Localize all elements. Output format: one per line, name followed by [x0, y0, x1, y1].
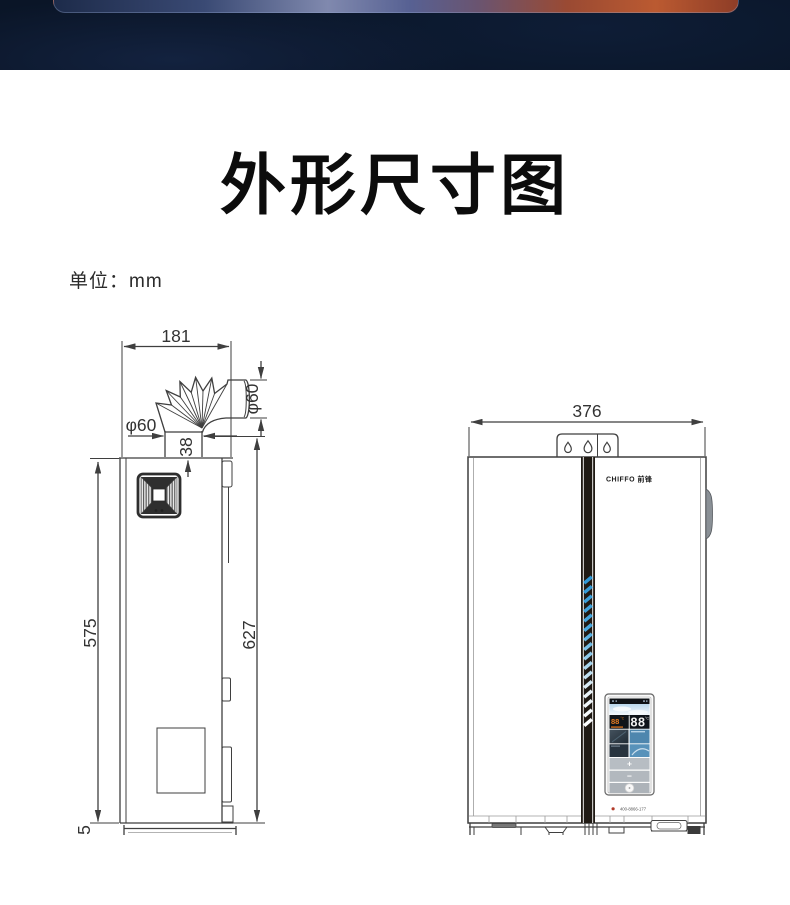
- top-banner: [0, 0, 790, 70]
- section-title: 外形尺寸图: [0, 152, 790, 218]
- dim-total-height-label: 627: [239, 620, 259, 649]
- dim-phi60-vertical: φ60: [242, 361, 267, 437]
- hotline-label: 400-8866-177: [620, 807, 647, 812]
- temp-right-unit: °C: [645, 717, 649, 721]
- side-bracket-profile: [222, 461, 232, 487]
- gas-valve: [651, 821, 687, 832]
- side-foot-profile: [222, 806, 233, 822]
- dimension-section: 外形尺寸图 单位：mm: [0, 70, 790, 835]
- side-panel-profile: [222, 747, 232, 802]
- dim-collar-label: 38: [176, 437, 196, 456]
- side-view-drawing: 181: [74, 326, 267, 835]
- plus-button-label: +: [627, 759, 632, 769]
- mount-bracket: [557, 434, 618, 457]
- pipe-funnel: [545, 827, 567, 833]
- dim-base-label: 5: [74, 825, 94, 835]
- dimension-drawing-canvas: 181: [0, 300, 790, 905]
- brand-logo: CHIFFO 前锋: [606, 475, 653, 484]
- dim-body-height-label: 575: [80, 618, 100, 647]
- minus-button-label: −: [627, 771, 632, 781]
- control-panel: 88 °C 88 °C: [605, 694, 654, 795]
- exhaust-duct-assembly: [156, 377, 249, 457]
- keyhole-right: [604, 442, 611, 452]
- grille-center: [153, 489, 166, 502]
- led-stripe: [581, 457, 595, 823]
- pipe-block: [609, 827, 624, 833]
- temp-left-value: 88: [611, 717, 619, 726]
- dim-front-width-label: 376: [572, 401, 601, 421]
- dim-width-label: 181: [161, 326, 190, 346]
- door-handle: [706, 489, 713, 539]
- unit-label: 单位：mm: [69, 266, 163, 293]
- dim-duct-diameter-h-label: φ60: [126, 415, 157, 435]
- vent-grille: [138, 474, 180, 517]
- dim-duct-diameter-v-label: φ60: [242, 383, 262, 414]
- dim-627: 627: [233, 439, 265, 824]
- access-panel: [157, 728, 205, 793]
- dim-575: 575: [80, 459, 119, 824]
- pipe-cap: [492, 824, 516, 828]
- base-profile: [124, 825, 236, 835]
- previous-image-card-edge: [53, 0, 739, 13]
- temp-right-value: 88: [631, 716, 646, 730]
- keyhole-left: [565, 442, 572, 452]
- side-tab-upper: [222, 678, 231, 701]
- keyhole-center: [584, 441, 592, 453]
- duct-pleats: [156, 377, 227, 428]
- front-view-drawing: 376: [468, 401, 713, 835]
- dim-38: 38: [176, 437, 196, 477]
- valve-knob: [688, 826, 701, 834]
